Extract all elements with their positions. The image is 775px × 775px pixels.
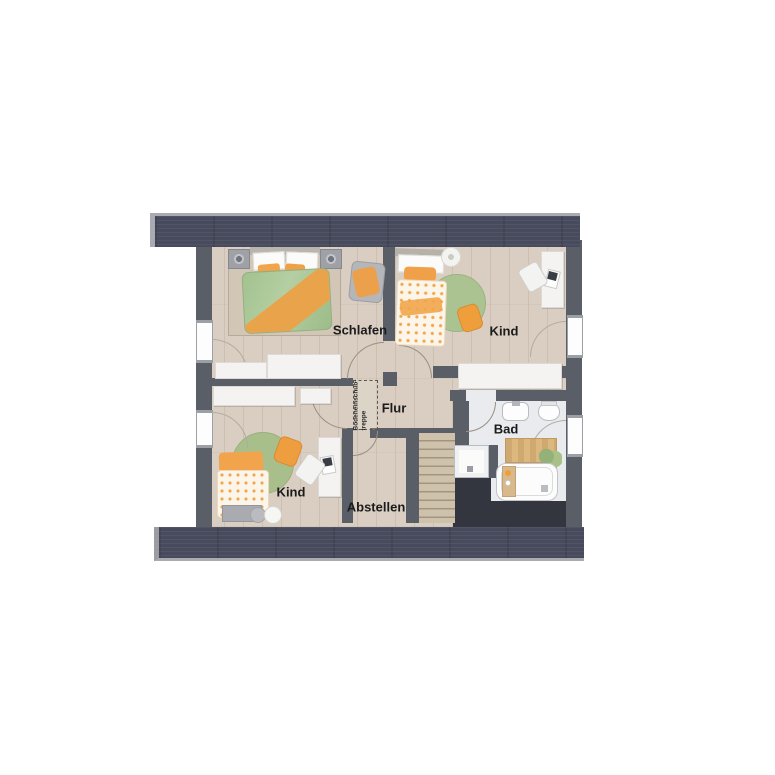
- exterior-wall-right: [566, 240, 582, 527]
- wall-stairs-west: [406, 428, 419, 523]
- flower-stool: [264, 506, 282, 524]
- wall-stub: [383, 372, 397, 386]
- attic-hatch-label-line2: treppe: [361, 411, 368, 431]
- roof-void-bottom: [491, 501, 566, 527]
- room-label-schlafen: Schlafen: [333, 323, 387, 338]
- window-kind-bottom: [196, 410, 213, 448]
- room-label-flur: Flur: [382, 401, 407, 416]
- flower-stool: [441, 247, 461, 267]
- wardrobe: [215, 362, 267, 379]
- attic-hatch-label: Bodeneinschub- treppe: [353, 380, 379, 431]
- window-kind-top: [567, 315, 583, 358]
- nightstand: [228, 249, 250, 269]
- roof-eave-bottom: [154, 527, 584, 561]
- sink-faucet: [512, 401, 520, 406]
- window-schlafen: [196, 320, 213, 363]
- bathtub-drain: [541, 485, 548, 492]
- toilet-tank: [541, 401, 557, 406]
- bath-bottle: [505, 470, 511, 476]
- shower: [454, 445, 489, 478]
- roof-void-left: [453, 477, 491, 527]
- floor-plan: Bodeneinschub- treppe: [0, 0, 775, 775]
- wall-shelf: [300, 388, 331, 404]
- shower-drain: [467, 466, 473, 472]
- staircase: [419, 433, 455, 523]
- bath-bottle: [505, 480, 511, 486]
- bed-throw-blanket: [241, 268, 332, 335]
- room-label-kind-bottom: Kind: [277, 485, 306, 500]
- wardrobe: [458, 363, 562, 389]
- window-bad: [567, 415, 583, 457]
- wardrobe: [213, 386, 295, 406]
- room-label-bad: Bad: [494, 422, 519, 437]
- wardrobe: [267, 354, 341, 379]
- wall-schlafen-south: [210, 378, 353, 386]
- double-bed-duvet: [241, 268, 332, 335]
- roof-eave-top: [150, 213, 580, 247]
- wall-bad-north-right: [496, 390, 566, 401]
- attic-hatch-label-line1: Bodeneinschub-: [353, 380, 360, 431]
- room-label-abstellen: Abstellen: [347, 500, 406, 515]
- wall-bad-north-left: [450, 390, 466, 401]
- nightstand: [320, 249, 342, 269]
- room-label-kind-top: Kind: [490, 324, 519, 339]
